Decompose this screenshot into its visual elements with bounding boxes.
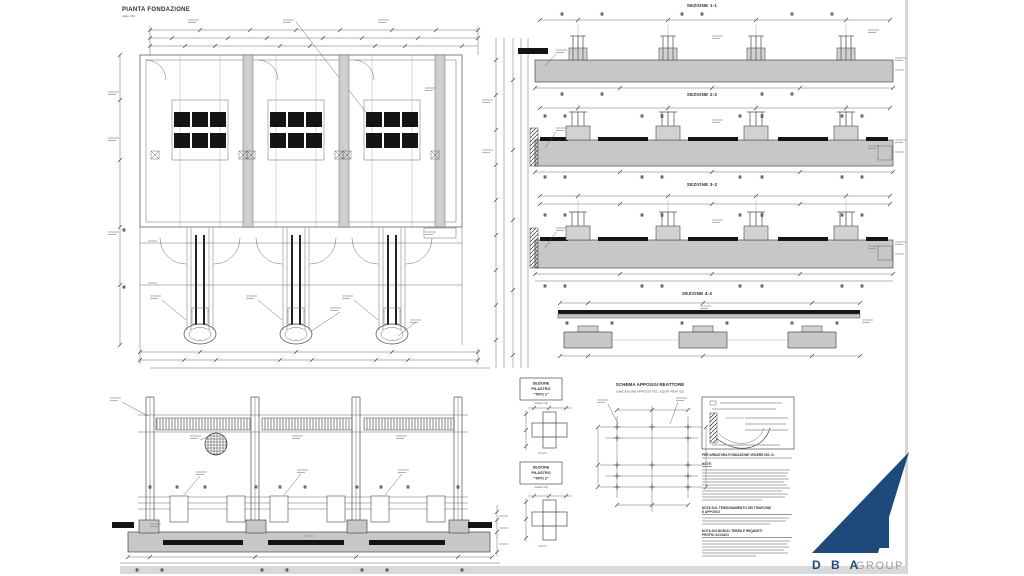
pilastro2-label-2: PILASTRO: [531, 471, 550, 475]
section-4-4-title: SEZIONE 4-4: [682, 291, 713, 296]
sheet-right-edge: [905, 0, 908, 574]
pilastro2-label-1: SEZIONE: [533, 466, 550, 470]
schema-title: SCHEMA APPOGGI REATTORE: [616, 382, 684, 387]
section-4-4: SEZIONE 4-4: [558, 291, 873, 358]
dba-logo-triangle-large: [812, 452, 909, 553]
pilastro1-label-1: SEZIONE: [533, 382, 550, 386]
schema-grid: [600, 406, 702, 512]
section-1-1-pedestals: [569, 36, 855, 60]
elevation-section: [110, 397, 508, 572]
notes-nota1-body: [702, 518, 789, 524]
section-1-1: SEZIONE 1-1: [518, 3, 906, 96]
plan-pier-unit-1: [146, 55, 247, 344]
sheet-bottom-edge: [120, 566, 906, 574]
pilastro2-label-3: "TIPO 2": [533, 477, 549, 481]
plan-side-dimension-strip: [482, 38, 528, 368]
notes-body-text: [702, 470, 790, 500]
dba-logo-group-text: GROUP: [856, 560, 904, 572]
pilastro-tipo2: SEZIONE PILASTRO "TIPO 2" scala 1:20: [520, 462, 572, 546]
rebar-detail-circle: [205, 433, 227, 455]
tirafondo-detail-box: [702, 397, 794, 449]
dba-group-logo: D B A GROUP: [812, 452, 909, 572]
notes-panel: PER ARMATURA FONDAZIONE VEDERE DIS. N. N…: [702, 397, 794, 556]
plan-pier-unit-3: [343, 55, 439, 344]
section-2-2-title: SEZIONE 2-2: [687, 92, 718, 97]
notes-nota1-line2: E APPOGGI: [702, 510, 720, 514]
notes-nota2-body: [702, 541, 790, 556]
plan-pier-unit-2: [247, 55, 343, 344]
pilastro-tipo1: SEZIONE PILASTRO "TIPO 1" scala 1:20: [520, 378, 572, 453]
pilastro1-detail: [524, 406, 572, 453]
plan-scale: scala 1:50: [122, 14, 135, 18]
plan-wall-strip: [243, 55, 253, 227]
section-3-3: SEZIONE 3-3: [530, 182, 906, 288]
plan-wall-strip: [339, 55, 349, 227]
notes-ref-line: PER ARMATURA FONDAZIONE VEDERE DIS. N.: [702, 453, 775, 457]
grating-band: [364, 418, 454, 430]
schema-appoggi: SCHEMA APPOGGI REATTORE (UBICAZIONE APPO…: [596, 382, 708, 512]
elevation-foundation: [112, 520, 492, 552]
pilastro1-label-3: "TIPO 1": [533, 393, 549, 397]
section-4-4-footings: [564, 326, 836, 348]
grating-band: [156, 418, 250, 430]
pilastro1-label-2: PILASTRO: [531, 387, 550, 391]
notes-nota2-line2: PROFILI ACCIAIO: [702, 533, 729, 537]
grating-band: [262, 418, 352, 430]
section-2-2-pedestals: [566, 112, 858, 140]
section-1-1-title: SEZIONE 1-1: [687, 3, 718, 8]
pilastro2-detail: [524, 494, 572, 546]
plan-title: PIANTA FONDAZIONE: [122, 7, 190, 13]
plan-bottom-dimensions: [140, 345, 490, 368]
plan-wall-strip: [435, 55, 445, 227]
pilastro1-scale: scala 1:20: [535, 401, 548, 405]
section-2-2: SEZIONE 2-2: [530, 92, 906, 179]
drawing-sheet: PIANTA FONDAZIONE scala 1:50: [0, 0, 1024, 576]
elevation-columns: [146, 397, 462, 528]
section-3-3-title: SEZIONE 3-3: [687, 182, 718, 187]
schema-subtitle: (UBICAZIONE APPOGGI TEC. EQUIP. REAT 02): [616, 390, 684, 394]
notes-label: NOTE:: [702, 462, 712, 466]
pilastro2-scale: scala 1:20: [535, 485, 548, 489]
section-3-3-pedestals: [566, 212, 858, 240]
cad-drawing: PIANTA FONDAZIONE scala 1:50: [0, 0, 1024, 576]
dba-logo-text: D B A: [812, 558, 862, 572]
plan-view: PIANTA FONDAZIONE scala 1:50: [108, 7, 490, 368]
